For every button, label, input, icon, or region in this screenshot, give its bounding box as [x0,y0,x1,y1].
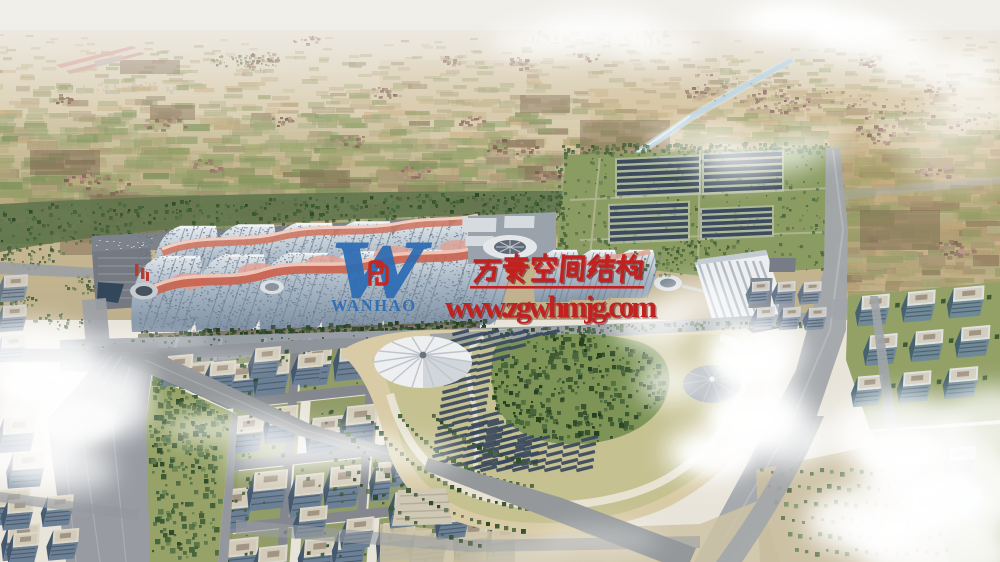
svg-text:www.zgwhmjg.com: www.zgwhmjg.com [445,289,657,324]
svg-text:WANHAO: WANHAO [331,296,417,315]
